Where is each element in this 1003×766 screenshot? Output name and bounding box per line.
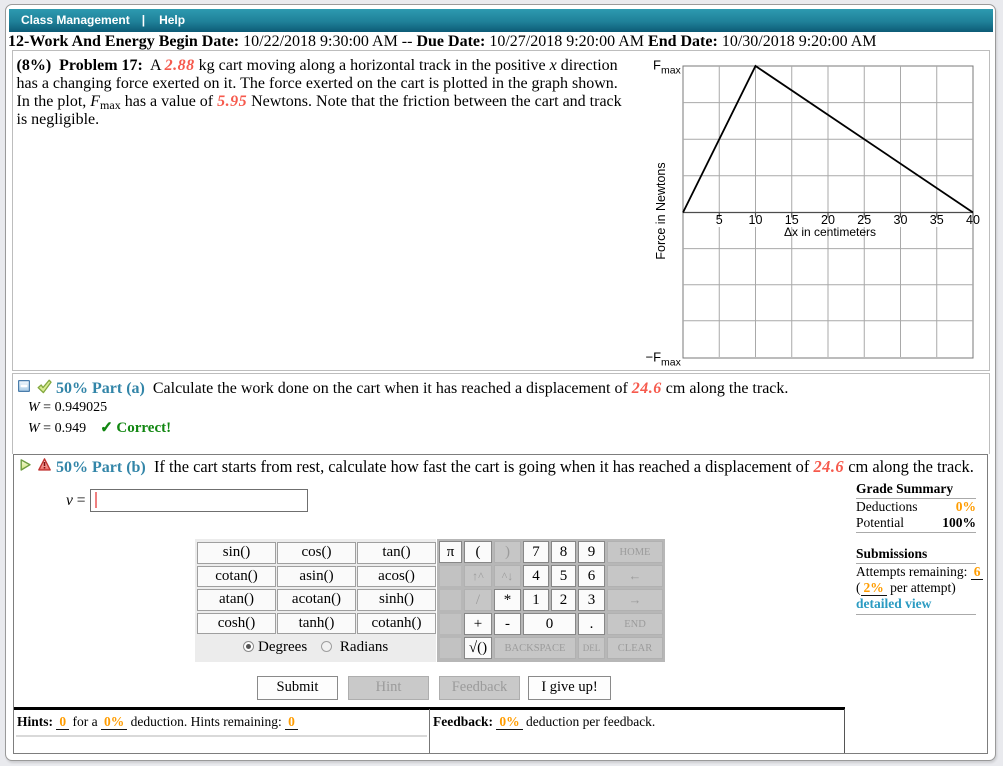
svg-text:10: 10 [749, 213, 763, 227]
svg-text:Force in Newtons: Force in Newtons [654, 162, 668, 259]
svg-text:Δx in centimeters: Δx in centimeters [784, 225, 876, 239]
svg-text:40: 40 [966, 213, 980, 227]
svg-text:Fmax: Fmax [653, 58, 682, 77]
svg-text:5: 5 [716, 213, 723, 227]
svg-text:30: 30 [894, 213, 908, 227]
svg-text:−Fmax: −Fmax [646, 350, 682, 369]
svg-text:35: 35 [930, 213, 944, 227]
